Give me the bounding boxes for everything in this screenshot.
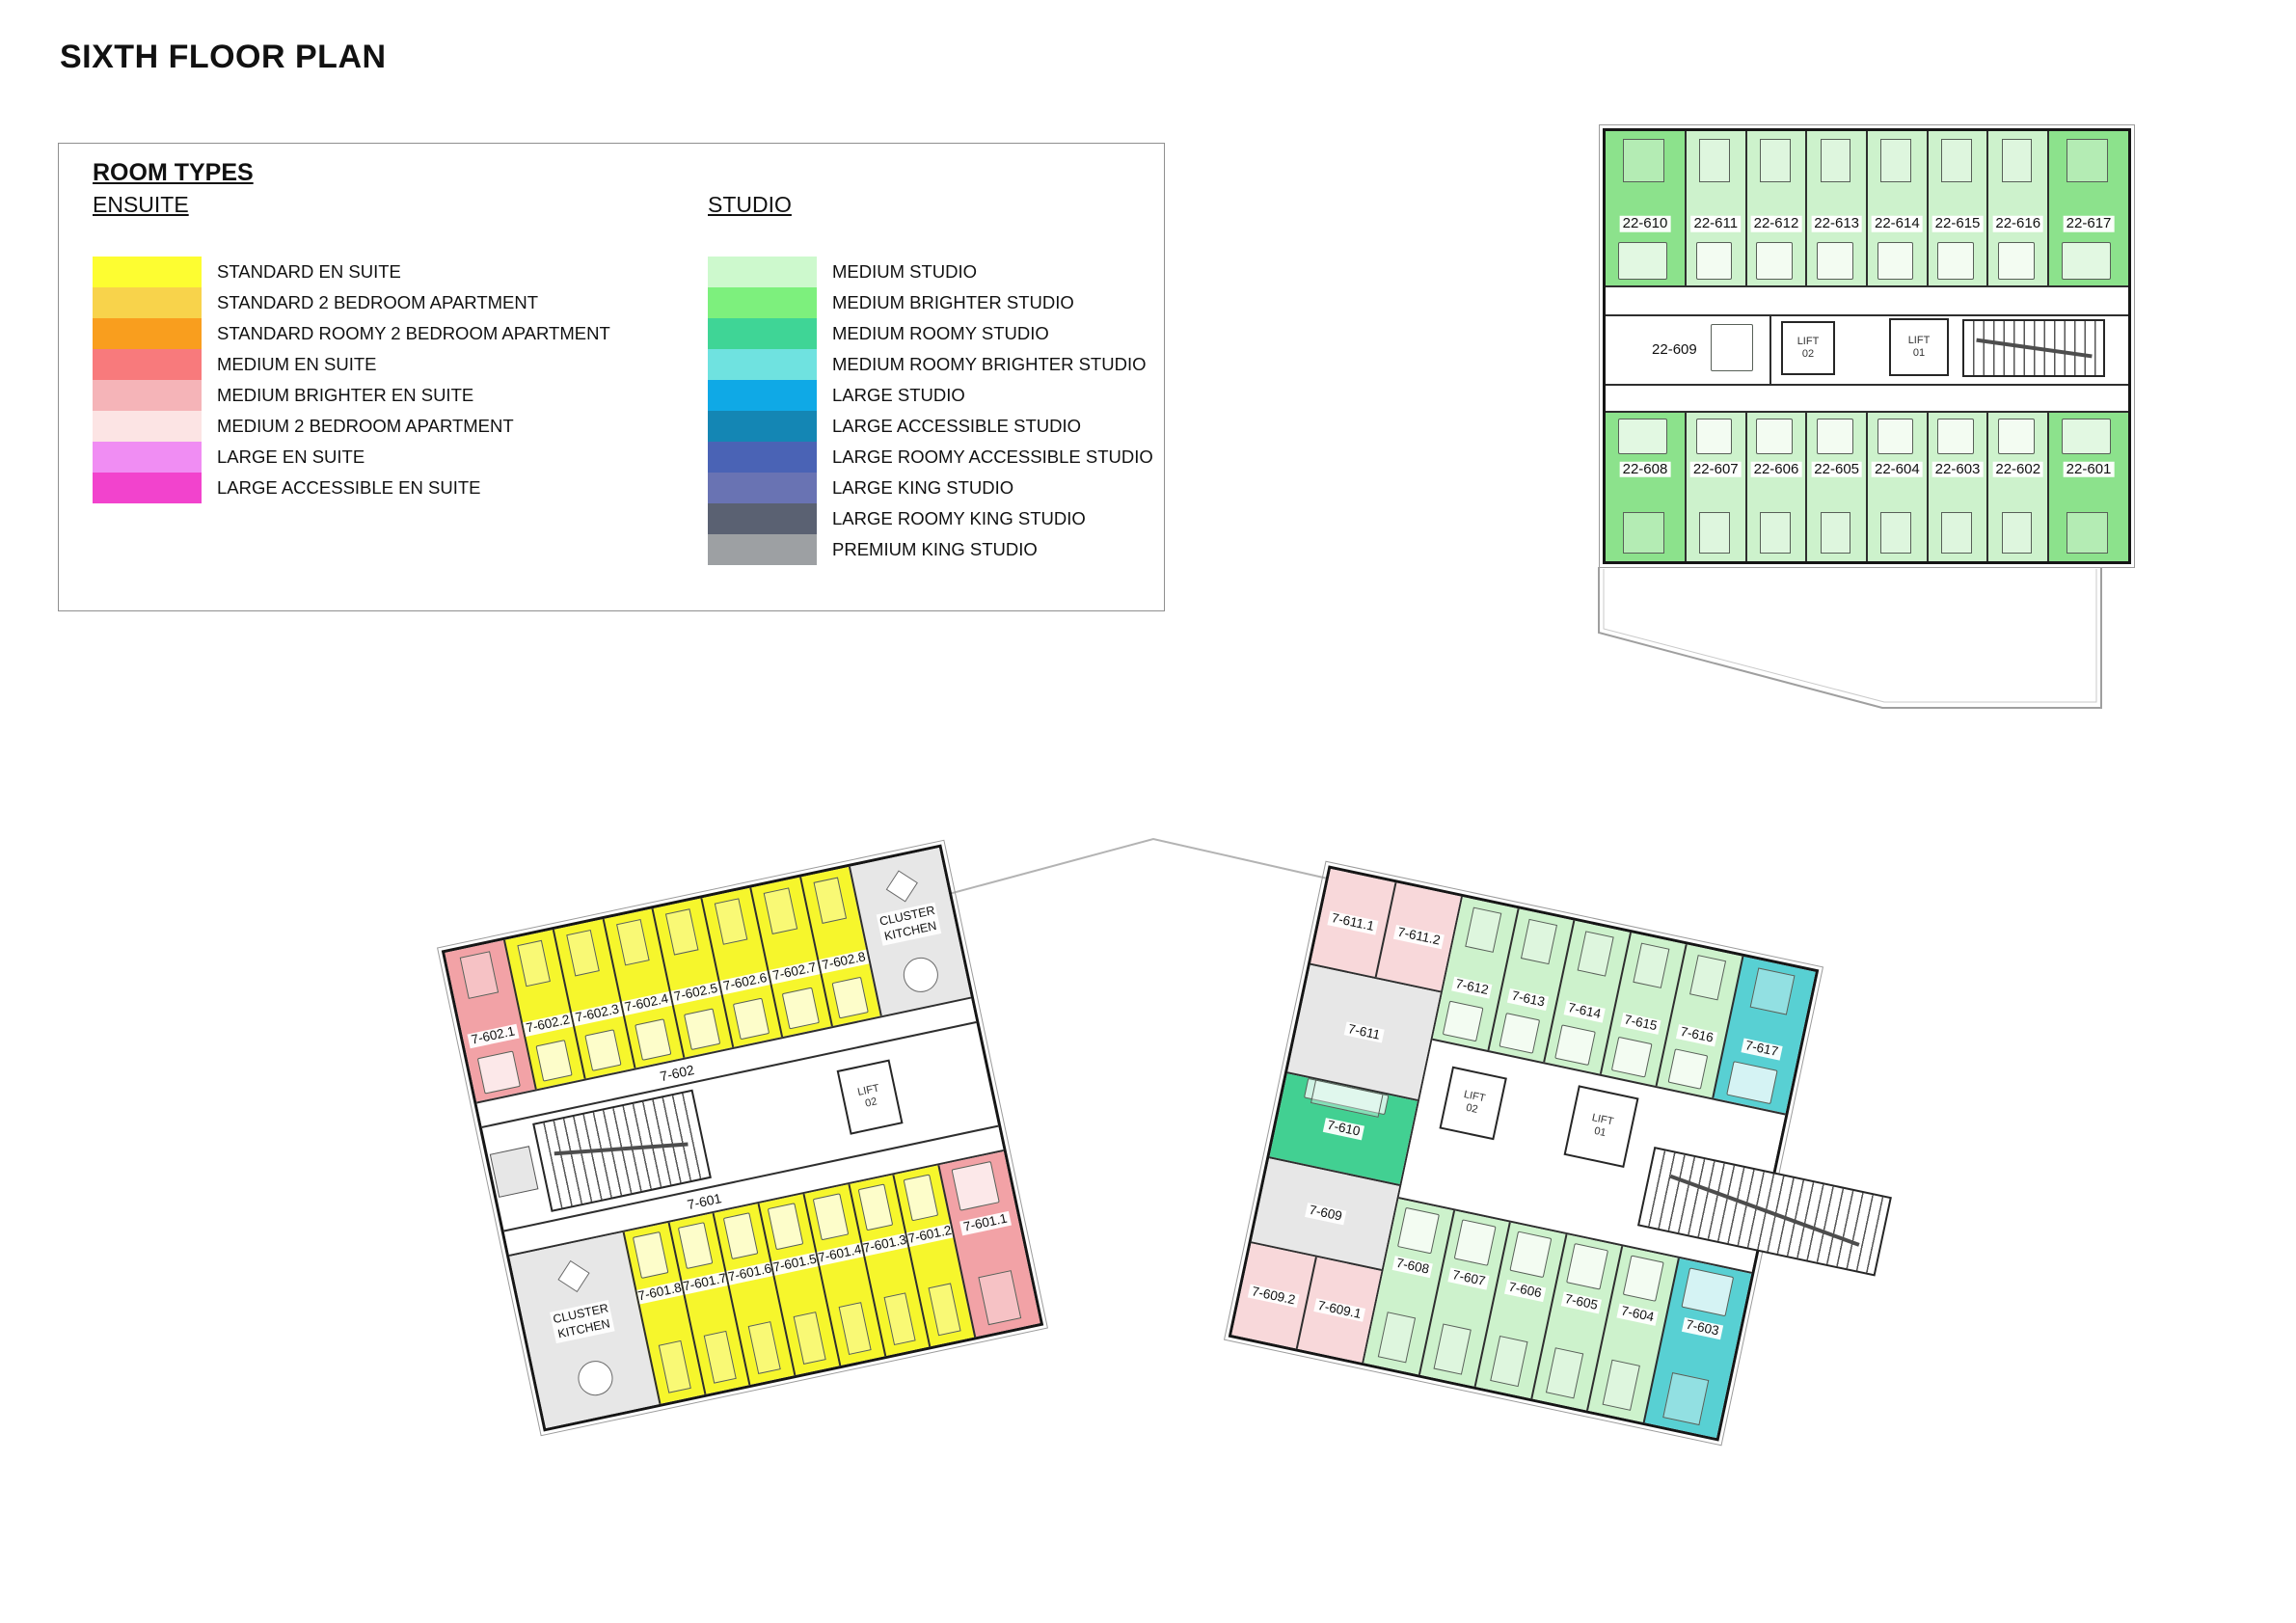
bathroom-pod	[684, 1008, 720, 1050]
bathroom-pod	[1877, 419, 1914, 454]
bed	[1490, 1336, 1527, 1388]
room-22-606: 22-606	[1745, 413, 1806, 561]
room-label: 22-608	[1620, 461, 1671, 477]
staircase	[1962, 319, 2105, 377]
floor-plan-block-22: 22-61022-61122-61222-61322-61422-61522-6…	[1603, 128, 2131, 564]
legend-ensuite-column: ENSUITE STANDARD EN SUITESTANDARD 2 BEDR…	[93, 192, 610, 503]
bed	[978, 1270, 1021, 1325]
legend-item: LARGE ROOMY KING STUDIO	[708, 503, 1153, 534]
room-label: 7-606	[1504, 1280, 1546, 1302]
legend-studio-items: MEDIUM STUDIOMEDIUM BRIGHTER STUDIOMEDIU…	[708, 257, 1153, 565]
room-label: 7-611.2	[1393, 925, 1445, 949]
room-label: 7-602.5	[670, 981, 722, 1005]
legend-color-swatch	[93, 442, 202, 473]
room-22-613: 22-613	[1805, 131, 1866, 285]
bed	[794, 1312, 826, 1365]
lift-02: LIFT 02	[837, 1060, 904, 1135]
lift-number: 02	[1802, 348, 1814, 361]
bed	[748, 1321, 781, 1374]
lift-02: LIFT 02	[1781, 321, 1835, 375]
bed	[659, 1340, 691, 1393]
room-label: 7-602.6	[719, 970, 771, 994]
lift-label: LIFT	[1908, 335, 1931, 347]
room-label: 22-614	[1872, 216, 1923, 232]
bathroom-pod	[1611, 1037, 1652, 1078]
legend-item: MEDIUM EN SUITE	[93, 349, 610, 380]
bathroom-pod	[1443, 1001, 1483, 1042]
bathroom-pod	[1454, 1219, 1497, 1265]
bathroom-pod	[831, 977, 868, 1019]
bathroom-pod	[1667, 1048, 1708, 1090]
bathroom-pod	[1998, 419, 2035, 454]
lift-number: 01	[1913, 347, 1925, 360]
room-label: 7-602.8	[818, 949, 870, 973]
room-label: 22-613	[1811, 216, 1862, 232]
legend-ensuite-heading: ENSUITE	[93, 192, 610, 218]
floor-plan-block-7-right: 7-611.17-611.27-6117-6107-6097-609.27-60…	[1229, 865, 1820, 1441]
legend-color-swatch	[708, 318, 817, 349]
room-22-602: 22-602	[1986, 413, 2047, 561]
bed	[2002, 139, 2033, 182]
legend-color-swatch	[93, 380, 202, 411]
bathroom-pod	[1756, 419, 1793, 454]
lift-number: 02	[864, 1096, 878, 1110]
site-boundary-line-v	[906, 822, 1369, 928]
room-label: 7-607	[1448, 1268, 1490, 1290]
bathroom-pod	[733, 997, 770, 1040]
legend-color-swatch	[708, 380, 817, 411]
room-label: 22-610	[1620, 216, 1671, 232]
legend-item: MEDIUM ROOMY BRIGHTER STUDIO	[708, 349, 1153, 380]
room-label: 7-611	[1344, 1021, 1385, 1043]
bed	[883, 1292, 916, 1345]
bed	[764, 887, 797, 934]
room-label: 7-603	[1682, 1317, 1723, 1339]
room-label: 7-610	[1323, 1118, 1364, 1140]
room-label: 7-601.6	[724, 1261, 776, 1285]
bathroom-pod	[585, 1029, 622, 1071]
block22-corridor-upper	[1606, 285, 2128, 316]
block22-core-band: 22-609 LIFT 02 LIFT 01	[1606, 316, 2128, 384]
legend-item: STANDARD ROOMY 2 BEDROOM APARTMENT	[93, 318, 610, 349]
bathroom-pod	[1937, 242, 1974, 279]
bed	[616, 919, 650, 966]
legend-item: LARGE ACCESSIBLE EN SUITE	[93, 473, 610, 503]
bathroom-pod	[1682, 1267, 1735, 1316]
room-label: 7-616	[1676, 1024, 1717, 1046]
room-label: 7-604	[1617, 1304, 1659, 1326]
bathroom-pod	[1566, 1243, 1608, 1289]
legend-item: MEDIUM 2 BEDROOM APARTMENT	[93, 411, 610, 442]
room-label: 7-601.8	[634, 1281, 686, 1305]
room-22-605: 22-605	[1805, 413, 1866, 561]
lift-number: 02	[1465, 1102, 1479, 1117]
legend-item: MEDIUM ROOMY STUDIO	[708, 318, 1153, 349]
room-22-617: 22-617	[2047, 131, 2128, 285]
bed	[459, 951, 499, 999]
bathroom-pod	[1618, 419, 1667, 454]
room-label: 7-611.1	[1327, 910, 1378, 934]
bed	[1377, 1312, 1415, 1364]
bathroom-pod	[903, 1175, 938, 1222]
lift-number: 01	[1593, 1125, 1607, 1140]
room-label: 7-602.1	[467, 1024, 519, 1048]
bed	[1434, 1323, 1472, 1375]
legend-color-swatch	[708, 442, 817, 473]
lift-label: LIFT	[1797, 336, 1820, 348]
bathroom-pod	[1397, 1207, 1440, 1254]
bathroom-pod	[1618, 242, 1667, 279]
room-label: 22-604	[1872, 461, 1923, 477]
room-label: 7-601.1	[959, 1211, 1012, 1235]
bed	[2066, 512, 2108, 554]
legend-color-swatch	[708, 349, 817, 380]
room-22-603: 22-603	[1927, 413, 1987, 561]
bed	[1699, 139, 1730, 182]
bed	[1699, 512, 1730, 554]
lift-01: LIFT 01	[1564, 1085, 1639, 1168]
legend-item: STANDARD EN SUITE	[93, 257, 610, 287]
bed	[1603, 1359, 1640, 1411]
bathroom-pod	[1756, 242, 1793, 279]
legend-item-label: MEDIUM BRIGHTER STUDIO	[832, 292, 1074, 313]
bed	[838, 1302, 871, 1355]
legend-item: LARGE ROOMY ACCESSIBLE STUDIO	[708, 442, 1153, 473]
bed	[813, 877, 847, 924]
room-label: 7-602.7	[769, 960, 821, 984]
legend-item: STANDARD 2 BEDROOM APARTMENT	[93, 287, 610, 318]
room-22-601: 22-601	[2047, 413, 2128, 561]
bed	[1521, 918, 1557, 963]
room-label: 22-609	[1649, 342, 1700, 359]
legend-item-label: LARGE STUDIO	[832, 385, 965, 406]
bed	[715, 898, 748, 945]
bathroom-pod	[2062, 419, 2111, 454]
legend-item: PREMIUM KING STUDIO	[708, 534, 1153, 565]
room-22-616: 22-616	[1986, 131, 2047, 285]
floor-plan-block-7-left: 7-602.17-602.27-602.37-602.47-602.57-602…	[442, 844, 1043, 1431]
block22-corridor-lower	[1606, 384, 2128, 413]
legend-ensuite-items: STANDARD EN SUITESTANDARD 2 BEDROOM APAR…	[93, 257, 610, 503]
legend-item-label: LARGE ROOMY ACCESSIBLE STUDIO	[832, 446, 1153, 468]
room-22-608: 22-608	[1606, 413, 1685, 561]
bathroom-pod	[1817, 419, 1853, 454]
legend-color-swatch	[93, 411, 202, 442]
legend-item: LARGE KING STUDIO	[708, 473, 1153, 503]
room-label: 22-601	[2064, 461, 2115, 477]
bed	[665, 908, 699, 956]
bathroom-pod	[678, 1222, 714, 1269]
legend-item-label: LARGE EN SUITE	[217, 446, 365, 468]
room-22-604: 22-604	[1866, 413, 1927, 561]
legend-item: MEDIUM BRIGHTER STUDIO	[708, 287, 1153, 318]
corridor-label: 7-602	[656, 1061, 698, 1084]
legend-color-swatch	[93, 349, 202, 380]
room-label: 7-609	[1305, 1203, 1346, 1225]
bathroom-pod	[1696, 419, 1733, 454]
room-types-legend: ROOM TYPES ENSUITE STANDARD EN SUITESTAN…	[58, 143, 1165, 611]
block22-bottom-room-row: 22-60822-60722-60622-60522-60422-60322-6…	[1606, 413, 2128, 561]
bathroom-pod	[2062, 242, 2111, 279]
room-label: 7-601.2	[905, 1223, 957, 1247]
room-label: 22-617	[2064, 216, 2115, 232]
bathroom-pod	[723, 1212, 759, 1259]
bed	[703, 1331, 736, 1384]
room-label: 22-605	[1811, 461, 1862, 477]
bed	[567, 930, 601, 977]
room-label: 22-616	[1992, 216, 2043, 232]
page: SIXTH FLOOR PLAN ROOM TYPES ENSUITE STAN…	[0, 0, 2296, 1623]
legend-item: LARGE ACCESSIBLE STUDIO	[708, 411, 1153, 442]
bathroom-pod	[1499, 1013, 1539, 1054]
bed	[1465, 906, 1501, 952]
room-label: 7-615	[1620, 1013, 1661, 1035]
room-label: 7-612	[1451, 977, 1493, 999]
bathroom-pod	[1510, 1231, 1553, 1278]
legend-item: LARGE EN SUITE	[93, 442, 610, 473]
legend-item-label: MEDIUM 2 BEDROOM APARTMENT	[217, 416, 514, 437]
bathroom-pod	[635, 1018, 671, 1061]
room-label: 7-609.1	[1313, 1298, 1365, 1322]
bathroom-pod	[1555, 1024, 1596, 1066]
legend-item-label: LARGE ACCESSIBLE STUDIO	[832, 416, 1081, 437]
bed	[1662, 1372, 1710, 1426]
bathroom-pod	[782, 987, 819, 1029]
bed	[1760, 139, 1791, 182]
legend-item-label: LARGE KING STUDIO	[832, 477, 1013, 499]
bed	[1760, 512, 1791, 554]
room-label: 22-615	[1932, 216, 1984, 232]
legend-color-swatch	[708, 411, 817, 442]
bed	[1821, 139, 1851, 182]
legend-item-label: STANDARD 2 BEDROOM APARTMENT	[217, 292, 538, 313]
legend-item: MEDIUM STUDIO	[708, 257, 1153, 287]
legend-heading: ROOM TYPES	[93, 159, 254, 187]
room-label: 22-603	[1932, 461, 1984, 477]
legend-color-swatch	[708, 257, 817, 287]
bathroom-pod	[1711, 324, 1753, 371]
legend-color-swatch	[93, 257, 202, 287]
room-label: 7-608	[1391, 1256, 1433, 1278]
legend-color-swatch	[93, 287, 202, 318]
legend-item-label: STANDARD ROOMY 2 BEDROOM APARTMENT	[217, 323, 610, 344]
bed	[1623, 512, 1664, 554]
bathroom-pod	[768, 1204, 803, 1251]
bathroom-pod	[1726, 1061, 1778, 1104]
bathroom-pod	[813, 1194, 849, 1241]
room-label: 7-601.7	[679, 1271, 731, 1295]
bathroom-pod	[535, 1040, 572, 1082]
cluster-kitchen-label: CLUSTERKITCHEN	[877, 903, 942, 946]
bed	[1546, 1347, 1583, 1399]
legend-item-label: MEDIUM ROOMY STUDIO	[832, 323, 1049, 344]
legend-color-swatch	[708, 503, 817, 534]
legend-item-label: MEDIUM STUDIO	[832, 261, 977, 283]
bathroom-pod	[1998, 242, 2035, 279]
bed	[929, 1283, 961, 1336]
corridor-label: 7-601	[683, 1190, 725, 1213]
legend-color-swatch	[708, 473, 817, 503]
bed	[1880, 139, 1911, 182]
room-label: 7-613	[1507, 988, 1549, 1011]
bathroom-pod	[1696, 242, 1733, 279]
bathroom-pod	[477, 1050, 521, 1094]
bed	[1821, 512, 1851, 554]
bed	[2002, 512, 2033, 554]
room-label: 7-617	[1741, 1038, 1782, 1060]
legend-studio-heading: STUDIO	[708, 192, 1153, 218]
room-22-614: 22-614	[1866, 131, 1927, 285]
legend-color-swatch	[93, 473, 202, 503]
room-22-607: 22-607	[1685, 413, 1745, 561]
bed	[517, 940, 551, 987]
legend-color-swatch	[708, 287, 817, 318]
legend-item-label: MEDIUM BRIGHTER EN SUITE	[217, 385, 473, 406]
room-label: 22-612	[1751, 216, 1802, 232]
room-label: 7-609.2	[1248, 1284, 1300, 1308]
bathroom-pod	[1622, 1255, 1664, 1301]
store-room	[490, 1146, 539, 1198]
bathroom-pod	[1937, 419, 1974, 454]
legend-item-label: LARGE ROOMY KING STUDIO	[832, 508, 1086, 529]
bed	[1749, 967, 1795, 1014]
room-label: 22-611	[1690, 216, 1741, 232]
legend-item: LARGE STUDIO	[708, 380, 1153, 411]
legend-color-swatch	[708, 534, 817, 565]
room-label: 22-602	[1992, 461, 2043, 477]
room-label: 7-601.5	[770, 1252, 822, 1276]
bed	[1941, 139, 1972, 182]
bed	[1578, 931, 1614, 976]
room-22-615: 22-615	[1927, 131, 1987, 285]
bathroom-pod	[633, 1231, 668, 1279]
room-label: 22-607	[1690, 461, 1742, 477]
bed	[1689, 955, 1726, 1000]
block22-top-room-row: 22-61022-61122-61222-61322-61422-61522-6…	[1606, 131, 2128, 285]
room-label: 7-614	[1564, 1000, 1606, 1022]
bathroom-pod	[858, 1184, 894, 1231]
room-22-610: 22-610	[1606, 131, 1685, 285]
room-label: 7-602.4	[621, 991, 673, 1015]
legend-item-label: PREMIUM KING STUDIO	[832, 539, 1038, 560]
bed	[1634, 942, 1670, 987]
lift-02: LIFT 02	[1439, 1067, 1506, 1141]
bed	[1941, 512, 1972, 554]
room-label: 7-602.2	[522, 1013, 574, 1037]
legend-color-swatch	[93, 318, 202, 349]
bed	[2066, 139, 2108, 182]
room-label: 7-602.3	[571, 1002, 623, 1026]
cluster-kitchen-label: CLUSTERKITCHEN	[550, 1300, 615, 1343]
bathroom-pod	[1817, 242, 1853, 279]
bed	[1623, 139, 1664, 182]
legend-item-label: MEDIUM ROOMY BRIGHTER STUDIO	[832, 354, 1146, 375]
room-22-609: 22-609	[1606, 316, 1771, 384]
site-boundary-line	[1581, 555, 2141, 729]
room-22-611: 22-611	[1685, 131, 1745, 285]
legend-studio-column: STUDIO MEDIUM STUDIOMEDIUM BRIGHTER STUD…	[708, 192, 1153, 565]
room-label: 7-605	[1560, 1291, 1602, 1313]
bathroom-pod	[951, 1161, 999, 1210]
legend-item-label: STANDARD EN SUITE	[217, 261, 401, 283]
legend-item-label: MEDIUM EN SUITE	[217, 354, 376, 375]
room-label: 22-606	[1751, 461, 1802, 477]
room-label: 7-601.3	[859, 1232, 911, 1257]
bathroom-pod	[1877, 242, 1914, 279]
bed	[1880, 512, 1911, 554]
page-title: SIXTH FLOOR PLAN	[60, 39, 387, 76]
legend-item-label: LARGE ACCESSIBLE EN SUITE	[217, 477, 480, 499]
room-22-612: 22-612	[1745, 131, 1806, 285]
room-label: 7-601.4	[814, 1242, 866, 1266]
lift-01: LIFT 01	[1889, 318, 1949, 376]
legend-item: MEDIUM BRIGHTER EN SUITE	[93, 380, 610, 411]
